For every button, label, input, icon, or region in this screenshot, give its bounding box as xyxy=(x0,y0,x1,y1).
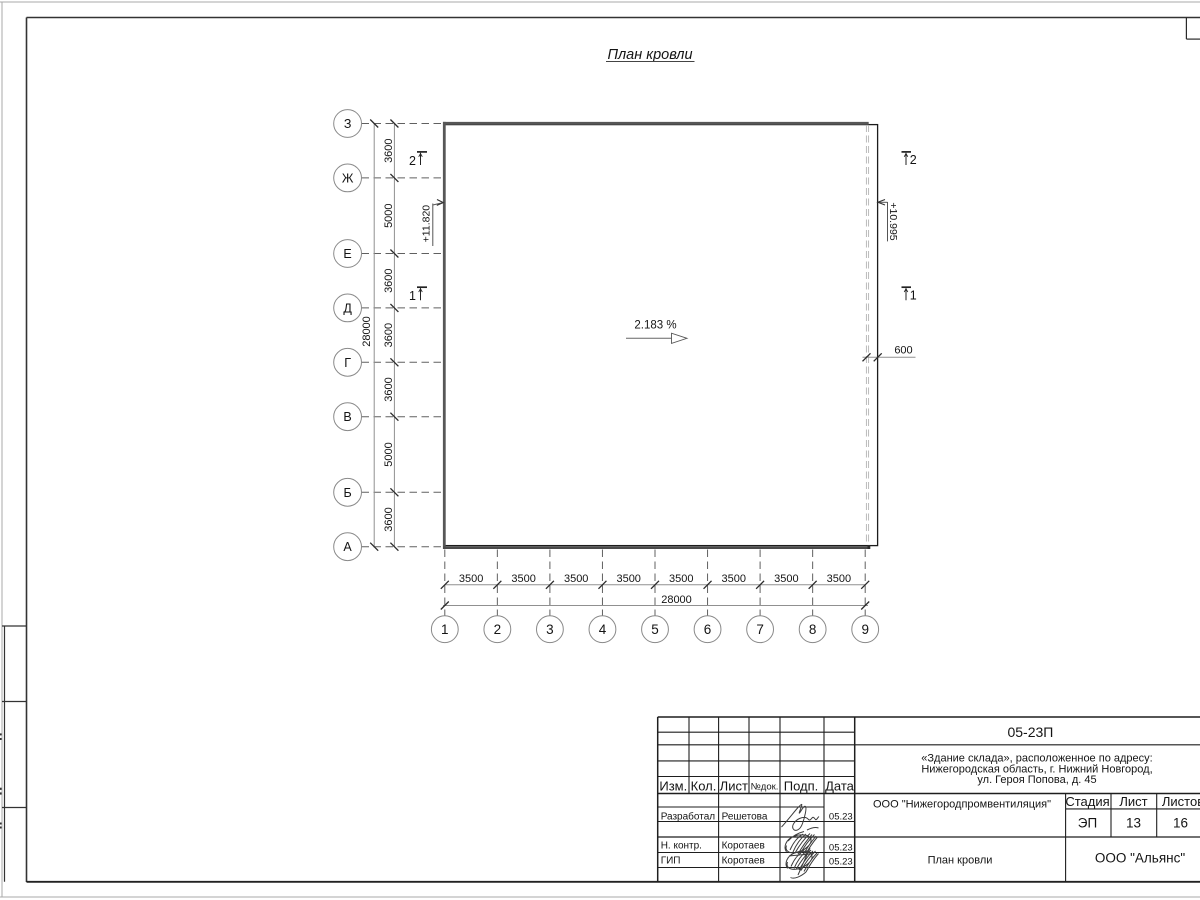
svg-text:3500: 3500 xyxy=(564,573,588,585)
svg-text:3500: 3500 xyxy=(722,573,746,585)
svg-text:3500: 3500 xyxy=(669,573,693,585)
svg-text:Ж: Ж xyxy=(342,171,354,185)
svg-text:2: 2 xyxy=(910,153,917,167)
svg-text:ГИП: ГИП xyxy=(661,855,681,866)
svg-text:16: 16 xyxy=(1173,816,1188,831)
svg-text:«Здание склада», расположенное: «Здание склада», расположенное по адресу… xyxy=(921,752,1152,764)
svg-text:7: 7 xyxy=(756,622,764,637)
svg-text:ЭП: ЭП xyxy=(1078,816,1097,831)
svg-text:Лист: Лист xyxy=(720,778,748,793)
svg-text:Н. контр.: Н. контр. xyxy=(661,840,702,851)
svg-text:Листов: Листов xyxy=(1162,794,1200,809)
svg-text:А: А xyxy=(343,540,352,554)
svg-text:Коротаев: Коротаев xyxy=(722,855,765,866)
svg-text:В: В xyxy=(343,410,351,424)
svg-text:3600: 3600 xyxy=(383,507,395,531)
svg-text:Кол.: Кол. xyxy=(691,778,717,793)
svg-text:28000: 28000 xyxy=(661,594,692,606)
svg-text:6: 6 xyxy=(704,622,712,637)
svg-text:3: 3 xyxy=(546,622,554,637)
svg-text:05.23: 05.23 xyxy=(829,856,853,867)
svg-text:Стадия: Стадия xyxy=(1065,794,1109,809)
svg-text:1: 1 xyxy=(409,289,416,303)
svg-text:3500: 3500 xyxy=(616,573,640,585)
svg-text:13: 13 xyxy=(1126,816,1141,831)
svg-text:З: З xyxy=(344,117,352,131)
svg-text:3500: 3500 xyxy=(774,573,798,585)
svg-text:5000: 5000 xyxy=(383,442,395,466)
svg-text:Коротаев: Коротаев xyxy=(722,840,765,851)
svg-text:05.23: 05.23 xyxy=(829,812,853,823)
svg-text:1: 1 xyxy=(910,288,917,302)
svg-text:3500: 3500 xyxy=(827,573,851,585)
svg-text:600: 600 xyxy=(894,345,912,357)
svg-text:3500: 3500 xyxy=(459,573,483,585)
svg-text:Д: Д xyxy=(343,301,352,315)
svg-text:ООО "Альянс": ООО "Альянс" xyxy=(1095,850,1185,865)
svg-text:4: 4 xyxy=(599,622,607,637)
svg-text:Лист: Лист xyxy=(1119,794,1147,809)
svg-text:9: 9 xyxy=(861,622,869,637)
svg-text:5: 5 xyxy=(651,622,659,637)
svg-text:Дата: Дата xyxy=(825,778,855,793)
svg-text:Изм.: Изм. xyxy=(659,778,687,793)
svg-text:1: 1 xyxy=(441,622,449,637)
svg-text:3600: 3600 xyxy=(383,323,395,347)
svg-text:2: 2 xyxy=(494,622,502,637)
svg-text:3500: 3500 xyxy=(511,573,535,585)
svg-text:3600: 3600 xyxy=(383,138,395,162)
svg-text:Б: Б xyxy=(343,486,351,500)
svg-text:Решетова: Решетова xyxy=(722,811,768,822)
svg-text:+11.820: +11.820 xyxy=(421,205,433,243)
svg-text:05.23: 05.23 xyxy=(829,842,853,853)
svg-text:28000: 28000 xyxy=(361,316,373,347)
svg-text:05-23П: 05-23П xyxy=(1007,724,1053,740)
svg-text:5000: 5000 xyxy=(383,203,395,227)
svg-text:2.183 %: 2.183 % xyxy=(634,319,676,331)
svg-text:№док.: №док. xyxy=(751,782,779,793)
svg-text:+10.995: +10.995 xyxy=(887,202,899,240)
svg-text:3600: 3600 xyxy=(383,268,395,292)
svg-text:Разработал: Разработал xyxy=(661,810,716,822)
svg-text:Г: Г xyxy=(344,356,351,370)
svg-text:3600: 3600 xyxy=(383,377,395,401)
svg-text:2: 2 xyxy=(409,154,416,168)
svg-text:Подп.: Подп. xyxy=(784,778,819,793)
svg-text:План кровли: План кровли xyxy=(928,855,993,867)
svg-text:ул. Героя Попова, д. 45: ул. Героя Попова, д. 45 xyxy=(977,774,1096,786)
svg-text:8: 8 xyxy=(809,622,817,637)
svg-text:ООО "Нижегородпромвентиляция": ООО "Нижегородпромвентиляция" xyxy=(873,799,1051,811)
svg-text:Е: Е xyxy=(343,247,351,261)
svg-text:План кровли: План кровли xyxy=(607,47,692,63)
